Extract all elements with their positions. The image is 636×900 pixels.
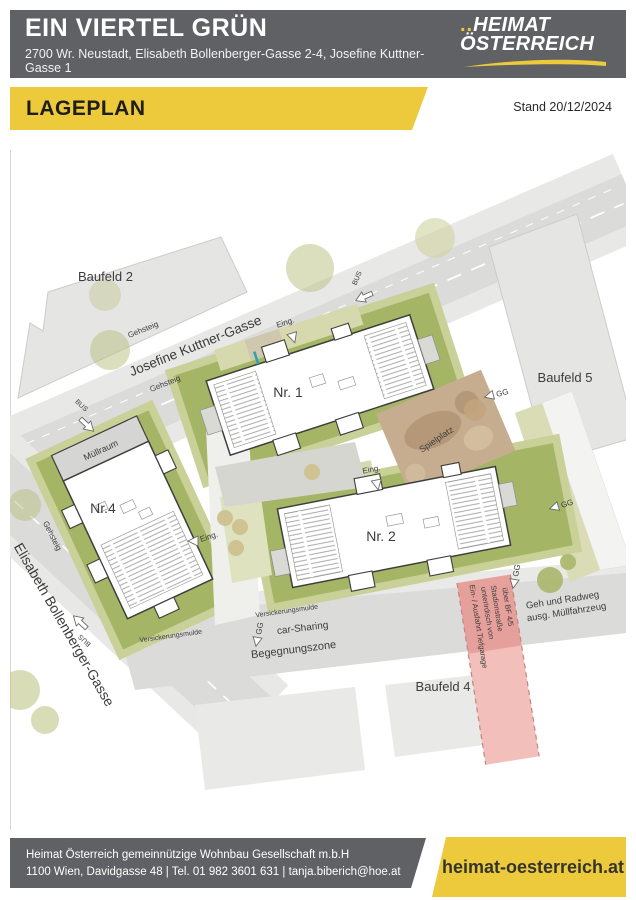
lageplan-page: EIN VIERTEL GRÜN 2700 Wr. Neustadt, Elis… xyxy=(0,0,636,900)
nr2-label: Nr. 2 xyxy=(366,528,396,544)
logo-swoosh-icon xyxy=(460,57,610,69)
gg-label: GG xyxy=(495,387,509,399)
baufeld-4-label: Baufeld 4 xyxy=(416,679,471,694)
nr1-label: Nr. 1 xyxy=(273,384,303,400)
footer-website: heimat-oesterreich.at xyxy=(434,857,624,878)
plan-date: Stand 20/12/2024 xyxy=(513,100,612,114)
baufeld-4-block-a xyxy=(195,687,365,790)
header-text-block: EIN VIERTEL GRÜN 2700 Wr. Neustadt, Elis… xyxy=(10,13,460,75)
footer-contact: 1100 Wien, Davidgasse 48 | Tel. 01 982 3… xyxy=(26,864,426,881)
footer-company: Heimat Österreich gemeinnützige Wohnbau … xyxy=(26,847,426,864)
footer-website-badge: heimat-oesterreich.at xyxy=(432,837,626,897)
baufeld-5-label: Baufeld 5 xyxy=(538,370,593,385)
footer-bar: Heimat Österreich gemeinnützige Wohnbau … xyxy=(10,838,426,888)
footer-text-block: Heimat Österreich gemeinnützige Wohnbau … xyxy=(10,838,426,880)
header-bar: EIN VIERTEL GRÜN 2700 Wr. Neustadt, Elis… xyxy=(10,10,626,78)
baufeld-2-label: Baufeld 2 xyxy=(78,269,133,284)
heimat-oesterreich-logo: ..HEIMAT ÖSTERREICH xyxy=(460,16,626,73)
logo-word-oesterreich: ÖSTERREICH xyxy=(460,35,610,54)
project-address: 2700 Wr. Neustadt, Elisabeth Bollenberge… xyxy=(25,47,460,75)
section-banner: LAGEPLAN xyxy=(10,87,428,130)
project-title: EIN VIERTEL GRÜN xyxy=(25,15,460,43)
site-plan: Müllraum Ein- / Ausfahrt Tiefgarage unte… xyxy=(10,145,626,835)
nr4-label: Nr.4 xyxy=(90,500,116,516)
section-title: LAGEPLAN xyxy=(10,97,146,121)
